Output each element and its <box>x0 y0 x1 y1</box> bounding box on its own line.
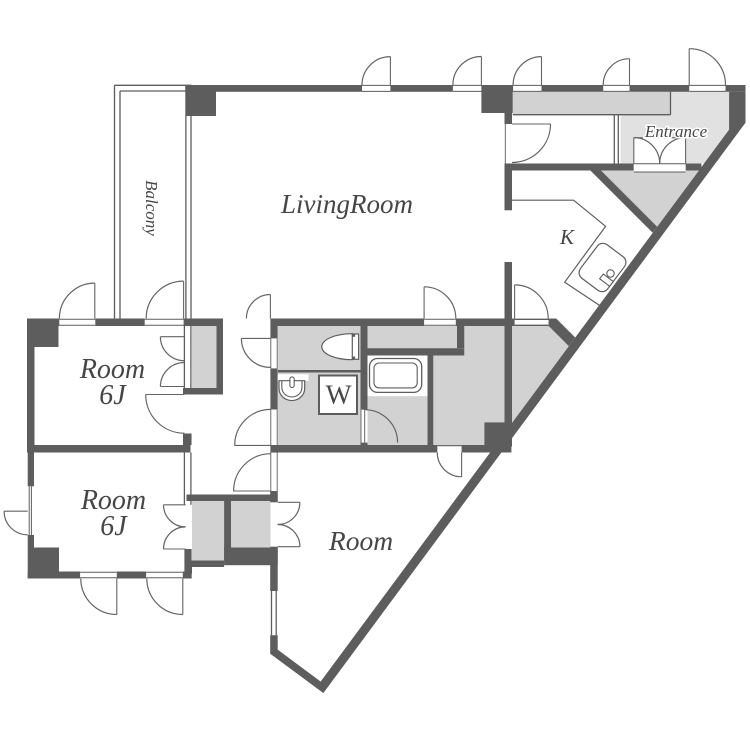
svg-text:W: W <box>326 379 352 410</box>
svg-text:Balcony: Balcony <box>142 180 161 236</box>
svg-text:K: K <box>559 225 575 249</box>
svg-text:6J: 6J <box>99 380 127 411</box>
svg-text:LivingRoom: LivingRoom <box>280 189 413 219</box>
svg-text:6J: 6J <box>100 511 128 542</box>
svg-text:Room: Room <box>328 525 393 556</box>
svg-text:Entrance: Entrance <box>644 122 708 141</box>
